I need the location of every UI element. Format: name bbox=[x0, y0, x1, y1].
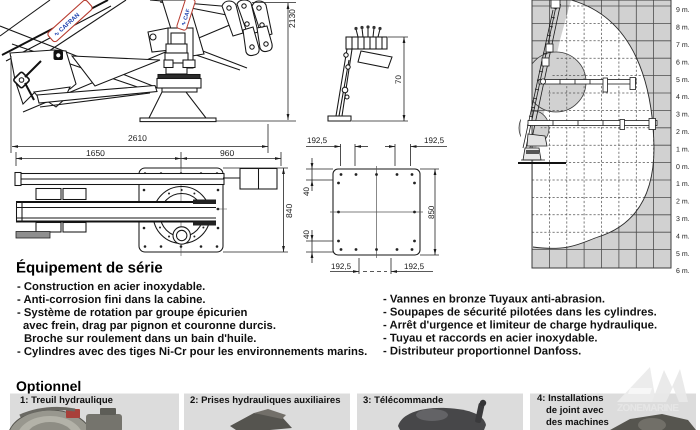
svg-text:2130: 2130 bbox=[287, 9, 297, 28]
svg-text:70: 70 bbox=[394, 75, 403, 84]
svg-text:de joint avec: de joint avec bbox=[546, 405, 604, 416]
svg-text:850: 850 bbox=[427, 205, 436, 219]
svg-text:2 m.: 2 m. bbox=[676, 199, 690, 206]
svg-text:2610: 2610 bbox=[128, 133, 147, 143]
svg-text:1: Treuil hydraulique: 1: Treuil hydraulique bbox=[20, 395, 113, 406]
svg-text:4 m.: 4 m. bbox=[676, 94, 690, 101]
svg-text:1 m.: 1 m. bbox=[676, 181, 690, 188]
svg-text:1 m.: 1 m. bbox=[676, 146, 690, 153]
svg-text:6 m.: 6 m. bbox=[676, 268, 690, 275]
svg-text:6 m.: 6 m. bbox=[676, 59, 690, 66]
svg-text:1650: 1650 bbox=[86, 148, 105, 158]
svg-text:2: Prises hydrauliques auxilia: 2: Prises hydrauliques auxiliaires bbox=[190, 395, 341, 406]
svg-text:Équipement de série: Équipement de série bbox=[16, 259, 163, 277]
svg-text:192,5: 192,5 bbox=[424, 136, 445, 145]
svg-text:- Construction en acier inoxyd: - Construction en acier inoxydable. bbox=[17, 281, 205, 293]
svg-text:3 m.: 3 m. bbox=[676, 112, 690, 119]
svg-text:3: Télécommande: 3: Télécommande bbox=[363, 395, 443, 406]
svg-text:- Cylindres avec des tiges Ni-: - Cylindres avec des tiges Ni-Cr pour le… bbox=[17, 346, 367, 358]
svg-text:ZONEMARINE: ZONEMARINE bbox=[617, 403, 679, 414]
svg-text:0 m.: 0 m. bbox=[676, 164, 690, 171]
svg-text:des machines: des machines bbox=[546, 417, 609, 428]
svg-text:- Distributeur proportionnel D: - Distributeur proportionnel Danfoss. bbox=[383, 346, 581, 358]
svg-text:2 m.: 2 m. bbox=[676, 129, 690, 136]
svg-text:192,5: 192,5 bbox=[331, 262, 352, 271]
svg-text:840: 840 bbox=[284, 204, 294, 218]
svg-text:- Système de rotation par grou: - Système de rotation par groupe épicuri… bbox=[17, 307, 247, 319]
svg-text:7 m.: 7 m. bbox=[676, 42, 690, 49]
svg-text:- Anti-corrosion fini dans la: - Anti-corrosion fini dans la cabine. bbox=[17, 294, 206, 306]
svg-text:4: Installations: 4: Installations bbox=[537, 393, 604, 404]
svg-text:5 m.: 5 m. bbox=[676, 77, 690, 84]
svg-text:- Tuyau et raccords en acier i: - Tuyau et raccords en acier inoxydable. bbox=[383, 333, 598, 345]
svg-text:5 m.: 5 m. bbox=[676, 251, 690, 258]
svg-text:9 m.: 9 m. bbox=[676, 7, 690, 14]
svg-text:192,5: 192,5 bbox=[404, 262, 425, 271]
svg-text:avec frein, drag par pignon et: avec frein, drag par pignon et couronne … bbox=[23, 320, 276, 332]
svg-text:3 m.: 3 m. bbox=[676, 216, 690, 223]
svg-text:- Soupapes de sécurité pilotée: - Soupapes de sécurité pilotées dans les… bbox=[383, 307, 657, 319]
svg-text:8 m.: 8 m. bbox=[676, 25, 690, 32]
svg-text:40: 40 bbox=[302, 187, 311, 196]
svg-text:Optionnel: Optionnel bbox=[16, 378, 81, 394]
svg-text:Broche sur roulement dans un b: Broche sur roulement dans un bain d'huil… bbox=[24, 333, 256, 345]
svg-text:40: 40 bbox=[302, 230, 311, 239]
svg-text:- Arrêt d'urgence et limiteur: - Arrêt d'urgence et limiteur de charge … bbox=[383, 320, 657, 332]
svg-text:- Vannes en bronze Tuyaux anti: - Vannes en bronze Tuyaux anti-abrasion. bbox=[383, 294, 605, 306]
svg-text:4 m.: 4 m. bbox=[676, 233, 690, 240]
svg-text:192,5: 192,5 bbox=[307, 136, 328, 145]
svg-text:960: 960 bbox=[220, 148, 234, 158]
